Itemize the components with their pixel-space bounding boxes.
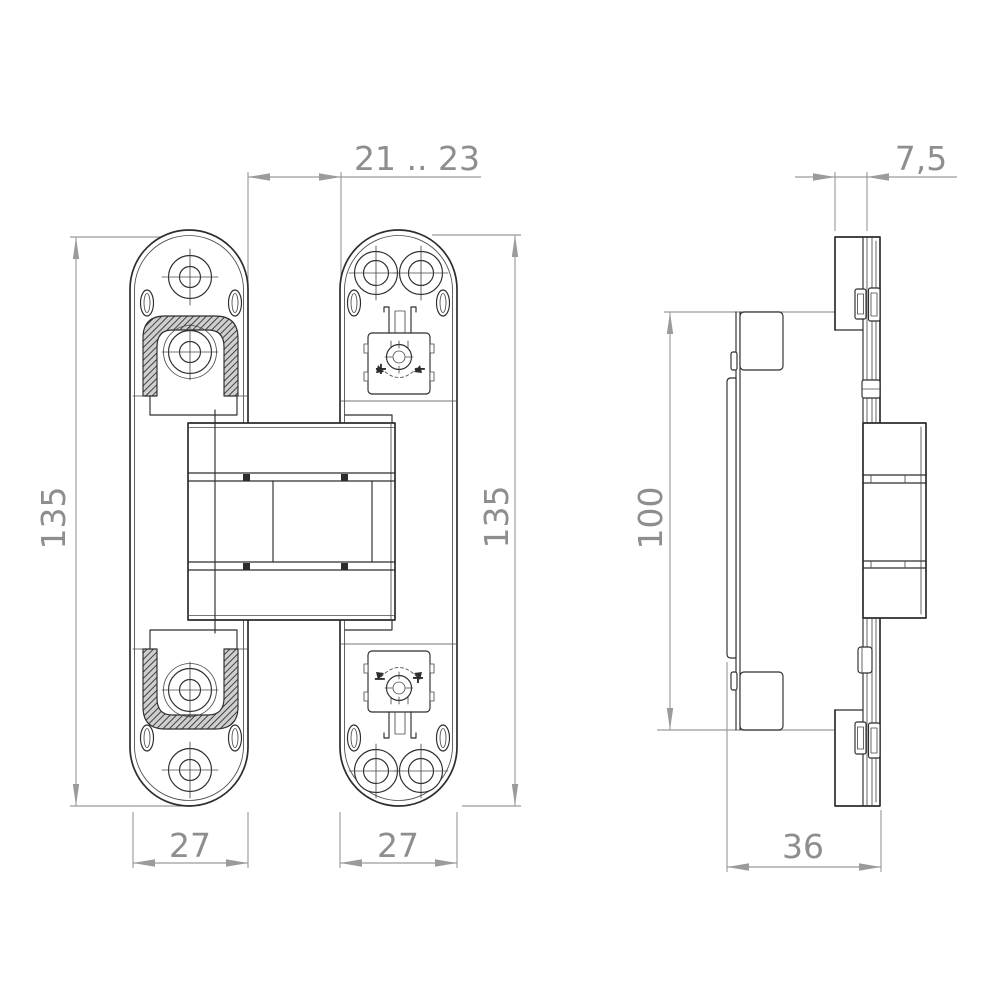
door-leaf-bracket-profile	[727, 312, 783, 730]
arrow-down	[512, 784, 518, 806]
arrow-left	[133, 859, 155, 867]
arrow-right-inward	[813, 173, 835, 181]
minus-sign: −	[373, 669, 386, 688]
flange-lug	[731, 672, 737, 690]
arrow-right	[859, 863, 881, 871]
dim-label-door-gap: 21 .. 23	[354, 139, 480, 178]
arrow-down	[667, 708, 673, 730]
arrow-left	[248, 173, 270, 181]
dim-label-right-width: 27	[377, 826, 419, 865]
dim-label-thickness: 7,5	[895, 139, 947, 178]
knuckle-block-outline	[863, 423, 926, 618]
front-view: + − − +	[130, 230, 457, 806]
arrow-right	[435, 859, 457, 867]
arrow-up	[512, 235, 518, 257]
top-flange	[740, 312, 783, 370]
arrow-down	[73, 784, 79, 806]
dim-label-depth: 36	[782, 827, 824, 866]
frame-plate-profile	[835, 237, 926, 806]
side-view	[727, 237, 926, 806]
dimension-frame-plate-thickness: 7,5	[795, 139, 957, 231]
arrow-left	[340, 859, 362, 867]
plus-sign: +	[374, 359, 387, 378]
plus-sign: +	[411, 668, 424, 687]
arrow-left	[727, 863, 749, 871]
dimension-right-plate-width: 27	[340, 812, 457, 868]
dim-label-left-height: 135	[34, 487, 73, 550]
bracket-web	[736, 312, 740, 730]
dim-label-side-height: 100	[631, 487, 670, 550]
clip	[855, 289, 866, 319]
hinge-technical-drawing: 21 .. 23 7,5 135 135 100 27 27	[0, 0, 1000, 1000]
arrow-left-inward	[867, 173, 889, 181]
technical-drawing-page: 21 .. 23 7,5 135 135 100 27 27	[0, 0, 1000, 1000]
clip	[858, 647, 872, 673]
dimension-left-plate-width: 27	[133, 812, 248, 868]
dim-label-left-width: 27	[169, 826, 211, 865]
arrow-up	[73, 237, 79, 259]
hinge-arm-body	[188, 410, 395, 633]
arrow-right	[226, 859, 248, 867]
minus-sign: −	[413, 359, 426, 378]
arrow-right	[319, 173, 341, 181]
hinge-body-outline	[188, 423, 395, 620]
bottom-flange	[740, 672, 783, 730]
dim-label-right-height: 135	[477, 486, 516, 549]
door-plate-edge	[727, 378, 736, 658]
knuckle-housing-blocks	[863, 423, 926, 618]
flange-lug	[731, 352, 737, 370]
arrow-up	[667, 312, 673, 334]
